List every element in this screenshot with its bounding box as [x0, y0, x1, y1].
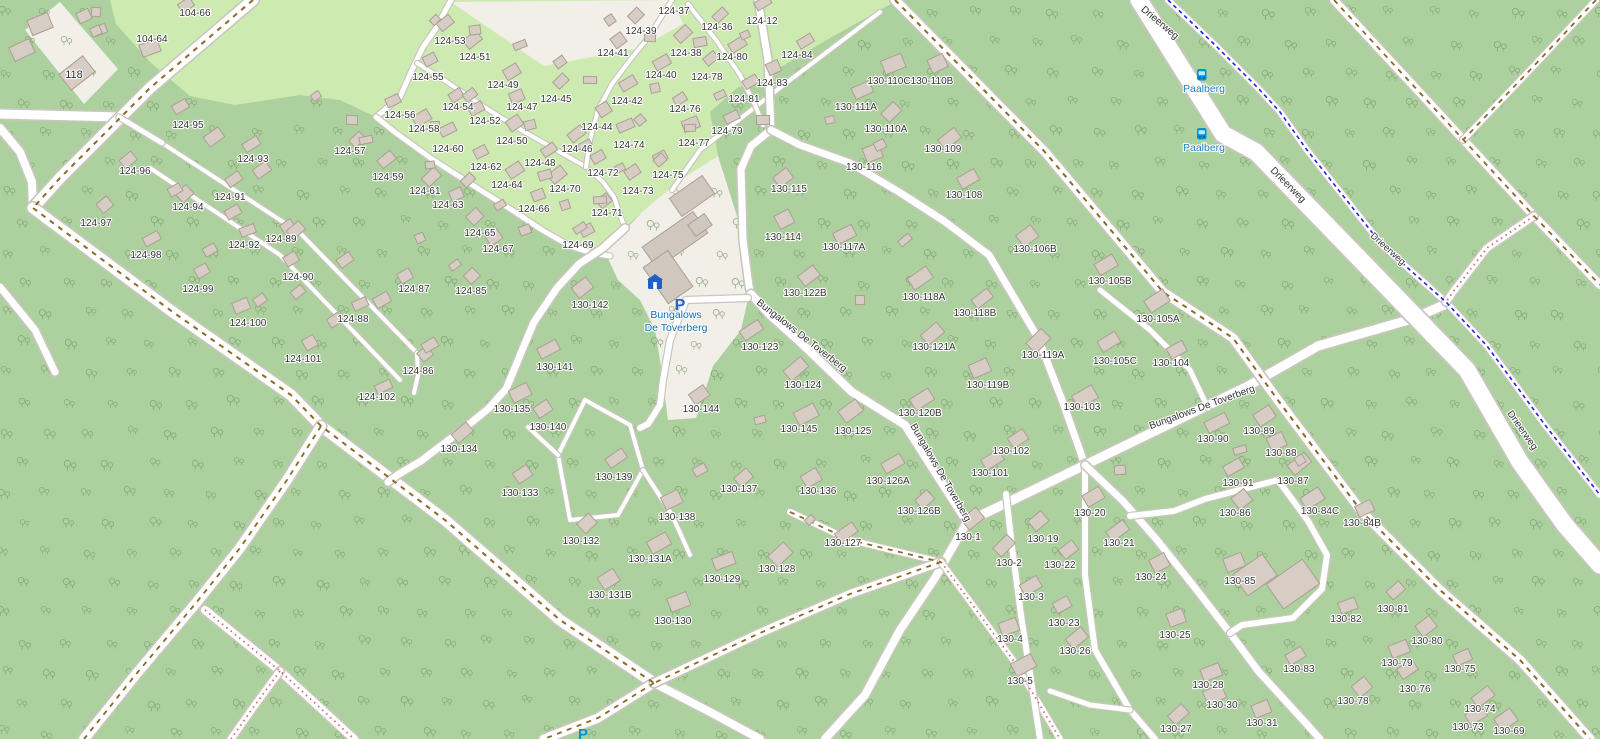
- svg-text:124-38: 124-38: [670, 48, 702, 59]
- svg-text:130-111A: 130-111A: [835, 102, 877, 113]
- svg-text:124-60: 124-60: [432, 144, 464, 155]
- svg-text:130-5: 130-5: [1007, 676, 1033, 687]
- svg-text:124-76: 124-76: [669, 104, 701, 115]
- svg-text:124-73: 124-73: [622, 186, 654, 197]
- svg-text:130-106B: 130-106B: [1013, 244, 1057, 255]
- svg-text:124-88: 124-88: [337, 314, 369, 325]
- svg-text:130-28: 130-28: [1192, 680, 1224, 691]
- svg-text:124-39: 124-39: [625, 26, 657, 37]
- svg-text:124-93: 124-93: [237, 154, 269, 165]
- svg-text:124-59: 124-59: [372, 172, 404, 183]
- svg-text:124-102: 124-102: [359, 392, 396, 403]
- svg-text:124-100: 124-100: [230, 318, 267, 329]
- svg-text:130-23: 130-23: [1048, 618, 1080, 629]
- svg-text:124-57: 124-57: [334, 146, 366, 157]
- svg-text:130-85: 130-85: [1224, 576, 1256, 587]
- svg-text:130-138: 130-138: [659, 512, 696, 523]
- svg-text:124-72: 124-72: [587, 168, 619, 179]
- svg-text:130-105C: 130-105C: [1093, 356, 1137, 367]
- svg-text:130-122B: 130-122B: [783, 288, 827, 299]
- svg-text:130-123: 130-123: [742, 342, 779, 353]
- svg-text:124-77: 124-77: [678, 138, 710, 149]
- svg-text:124-45: 124-45: [540, 94, 572, 105]
- svg-text:130-90: 130-90: [1197, 434, 1229, 445]
- svg-text:130-137: 130-137: [721, 484, 758, 495]
- svg-text:124-94: 124-94: [172, 202, 204, 213]
- svg-text:124-79: 124-79: [711, 126, 743, 137]
- svg-text:130-81: 130-81: [1377, 604, 1409, 615]
- svg-text:124-63: 124-63: [432, 200, 464, 211]
- svg-text:130-3: 130-3: [1018, 592, 1044, 603]
- svg-text:124-101: 124-101: [285, 354, 322, 365]
- svg-text:130-121A: 130-121A: [912, 342, 956, 353]
- svg-text:130-110B: 130-110B: [911, 76, 954, 87]
- svg-text:130-73: 130-73: [1452, 722, 1484, 733]
- svg-text:130-2: 130-2: [996, 558, 1022, 569]
- svg-text:124-71: 124-71: [591, 208, 623, 219]
- svg-text:130-132: 130-132: [563, 536, 600, 547]
- svg-text:Paalberg: Paalberg: [1183, 142, 1225, 154]
- svg-text:124-70: 124-70: [549, 184, 581, 195]
- svg-text:130-86: 130-86: [1219, 508, 1251, 519]
- svg-text:130-117A: 130-117A: [823, 242, 866, 253]
- svg-text:124-89: 124-89: [265, 234, 297, 245]
- svg-text:124-91: 124-91: [214, 192, 246, 203]
- svg-text:130-124: 130-124: [785, 380, 822, 391]
- svg-text:130-120B: 130-120B: [898, 408, 942, 419]
- svg-text:130-75: 130-75: [1444, 664, 1476, 675]
- svg-text:130-4: 130-4: [997, 634, 1023, 645]
- svg-text:130-133: 130-133: [502, 488, 539, 499]
- svg-text:130-69: 130-69: [1493, 726, 1525, 737]
- svg-text:124-62: 124-62: [470, 162, 502, 173]
- svg-text:124-51: 124-51: [459, 52, 491, 63]
- svg-text:124-53: 124-53: [434, 36, 466, 47]
- svg-text:124-92: 124-92: [228, 240, 260, 251]
- svg-text:130-130: 130-130: [655, 616, 692, 627]
- svg-text:124-48: 124-48: [524, 158, 556, 169]
- svg-text:Paalberg: Paalberg: [1183, 83, 1225, 95]
- svg-text:124-84: 124-84: [781, 50, 813, 61]
- svg-text:130-131A: 130-131A: [628, 554, 672, 565]
- svg-text:130-126B: 130-126B: [897, 506, 941, 517]
- svg-text:124-56: 124-56: [384, 110, 416, 121]
- svg-text:130-78: 130-78: [1337, 696, 1369, 707]
- svg-text:130-144: 130-144: [683, 404, 720, 415]
- svg-text:124-85: 124-85: [455, 286, 487, 297]
- svg-text:124-78: 124-78: [691, 72, 723, 83]
- svg-text:130-20: 130-20: [1074, 508, 1106, 519]
- svg-text:130-145: 130-145: [781, 424, 818, 435]
- svg-text:124-67: 124-67: [482, 244, 514, 255]
- svg-text:130-142: 130-142: [572, 300, 609, 311]
- svg-text:124-69: 124-69: [562, 240, 594, 251]
- svg-text:130-102: 130-102: [993, 446, 1030, 457]
- svg-text:130-110A: 130-110A: [865, 124, 908, 135]
- svg-text:124-55: 124-55: [412, 72, 444, 83]
- svg-text:124-41: 124-41: [597, 48, 629, 59]
- svg-text:124-90: 124-90: [282, 272, 314, 283]
- svg-text:130-129: 130-129: [704, 574, 741, 585]
- svg-text:130-126A: 130-126A: [866, 476, 910, 487]
- svg-text:130-140: 130-140: [530, 422, 567, 433]
- svg-text:130-76: 130-76: [1399, 684, 1431, 695]
- svg-text:130-139: 130-139: [596, 472, 633, 483]
- svg-text:124-47: 124-47: [506, 102, 538, 113]
- svg-text:124-98: 124-98: [130, 250, 162, 261]
- svg-text:124-66: 124-66: [518, 204, 550, 215]
- svg-text:124-61: 124-61: [409, 186, 441, 197]
- svg-text:124-42: 124-42: [611, 96, 643, 107]
- svg-text:118: 118: [65, 69, 83, 81]
- svg-text:130-135: 130-135: [494, 404, 531, 415]
- svg-text:130-104: 130-104: [1153, 358, 1190, 369]
- svg-text:130-105A: 130-105A: [1136, 314, 1180, 325]
- svg-text:130-115: 130-115: [771, 184, 807, 195]
- svg-text:130-31: 130-31: [1246, 718, 1278, 729]
- svg-text:130-136: 130-136: [800, 486, 837, 497]
- svg-text:Bungalows: Bungalows: [650, 309, 701, 321]
- svg-text:130-101: 130-101: [972, 468, 1009, 479]
- svg-text:124-87: 124-87: [398, 284, 430, 295]
- svg-text:130-141: 130-141: [537, 362, 574, 373]
- svg-text:130-103: 130-103: [1064, 402, 1101, 413]
- svg-text:130-83: 130-83: [1283, 664, 1315, 675]
- svg-text:130-87: 130-87: [1277, 476, 1309, 487]
- svg-text:124-44: 124-44: [581, 122, 613, 133]
- svg-text:130-108: 130-108: [946, 190, 983, 201]
- svg-text:124-95: 124-95: [172, 120, 204, 131]
- svg-text:130-119B: 130-119B: [967, 380, 1010, 391]
- svg-text:130-128: 130-128: [759, 564, 796, 575]
- svg-text:124-49: 124-49: [487, 80, 519, 91]
- svg-text:130-21: 130-21: [1103, 538, 1135, 549]
- svg-text:124-99: 124-99: [182, 284, 214, 295]
- svg-text:124-80: 124-80: [716, 52, 748, 63]
- svg-text:130-118B: 130-118B: [954, 308, 997, 319]
- svg-text:De Toverberg: De Toverberg: [645, 322, 708, 334]
- svg-text:130-84C: 130-84C: [1301, 506, 1339, 517]
- svg-text:124-12: 124-12: [746, 16, 778, 27]
- svg-text:130-134: 130-134: [441, 444, 478, 455]
- svg-text:130-110C: 130-110C: [867, 76, 910, 87]
- svg-text:130-30: 130-30: [1206, 700, 1238, 711]
- svg-text:124-58: 124-58: [408, 124, 440, 135]
- svg-text:104-64: 104-64: [136, 34, 168, 45]
- svg-text:130-24: 130-24: [1135, 572, 1167, 583]
- svg-text:124-74: 124-74: [613, 140, 645, 151]
- svg-text:130-125: 130-125: [835, 426, 872, 437]
- svg-text:124-50: 124-50: [496, 136, 528, 147]
- svg-text:130-80: 130-80: [1411, 636, 1443, 647]
- svg-text:130-27: 130-27: [1160, 724, 1192, 735]
- svg-text:124-64: 124-64: [491, 180, 523, 191]
- svg-text:124-52: 124-52: [469, 116, 501, 127]
- svg-text:124-46: 124-46: [561, 144, 593, 155]
- svg-text:130-109: 130-109: [925, 144, 962, 155]
- svg-text:130-88: 130-88: [1265, 448, 1297, 459]
- svg-text:130-114: 130-114: [765, 232, 801, 243]
- svg-text:130-19: 130-19: [1027, 534, 1059, 545]
- svg-text:P: P: [578, 726, 588, 739]
- svg-text:124-40: 124-40: [645, 70, 677, 81]
- svg-text:130-22: 130-22: [1044, 560, 1076, 571]
- svg-text:130-91: 130-91: [1222, 478, 1254, 489]
- svg-text:124-86: 124-86: [402, 366, 434, 377]
- svg-text:124-96: 124-96: [119, 166, 151, 177]
- svg-text:130-127: 130-127: [825, 538, 862, 549]
- svg-text:130-89: 130-89: [1243, 426, 1275, 437]
- svg-text:124-97: 124-97: [80, 218, 112, 229]
- svg-text:130-119A: 130-119A: [1022, 350, 1065, 361]
- svg-text:130-105B: 130-105B: [1088, 276, 1132, 287]
- svg-text:124-75: 124-75: [652, 170, 684, 181]
- svg-text:124-37: 124-37: [658, 6, 690, 17]
- svg-text:130-118A: 130-118A: [903, 292, 946, 303]
- svg-text:124-54: 124-54: [442, 102, 474, 113]
- svg-text:124-81: 124-81: [728, 94, 760, 105]
- svg-text:124-36: 124-36: [701, 22, 733, 33]
- svg-text:130-1: 130-1: [955, 532, 981, 543]
- svg-text:130-131B: 130-131B: [588, 590, 632, 601]
- svg-text:124-83: 124-83: [756, 78, 788, 89]
- svg-text:130-25: 130-25: [1159, 630, 1191, 641]
- svg-text:124-65: 124-65: [464, 228, 496, 239]
- svg-text:130-79: 130-79: [1381, 658, 1413, 669]
- svg-text:130-26: 130-26: [1059, 646, 1091, 657]
- svg-text:130-74: 130-74: [1464, 704, 1496, 715]
- svg-text:130-116: 130-116: [846, 162, 882, 173]
- svg-text:130-82: 130-82: [1330, 614, 1362, 625]
- svg-text:104-66: 104-66: [179, 8, 211, 19]
- svg-text:130-84B: 130-84B: [1343, 518, 1381, 529]
